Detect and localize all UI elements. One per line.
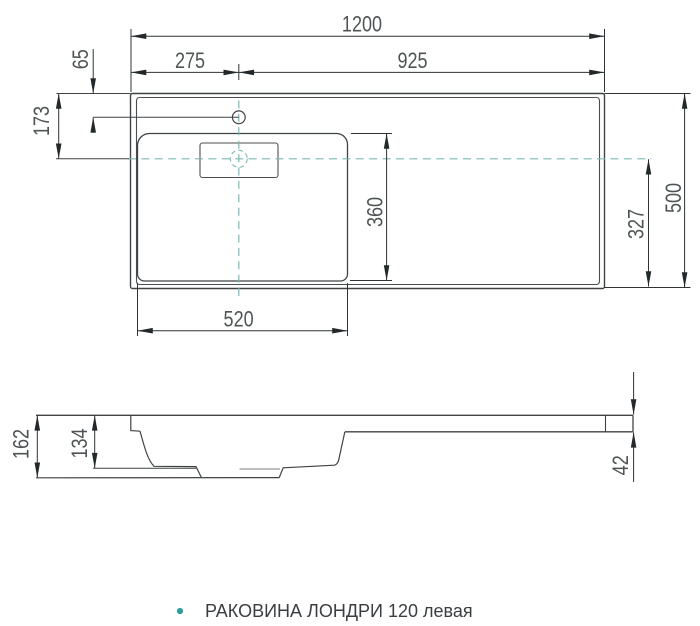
svg-text:275: 275 (175, 49, 205, 73)
svg-text:173: 173 (30, 106, 54, 136)
svg-text:1200: 1200 (342, 13, 382, 37)
svg-text:327: 327 (625, 209, 649, 239)
svg-text:500: 500 (662, 183, 686, 213)
svg-text:42: 42 (609, 455, 633, 475)
svg-text:65: 65 (69, 49, 93, 69)
svg-text:925: 925 (397, 49, 427, 73)
svg-text:360: 360 (364, 197, 388, 227)
svg-text:134: 134 (68, 428, 92, 458)
svg-text:162: 162 (10, 429, 34, 459)
svg-text:520: 520 (224, 308, 254, 332)
